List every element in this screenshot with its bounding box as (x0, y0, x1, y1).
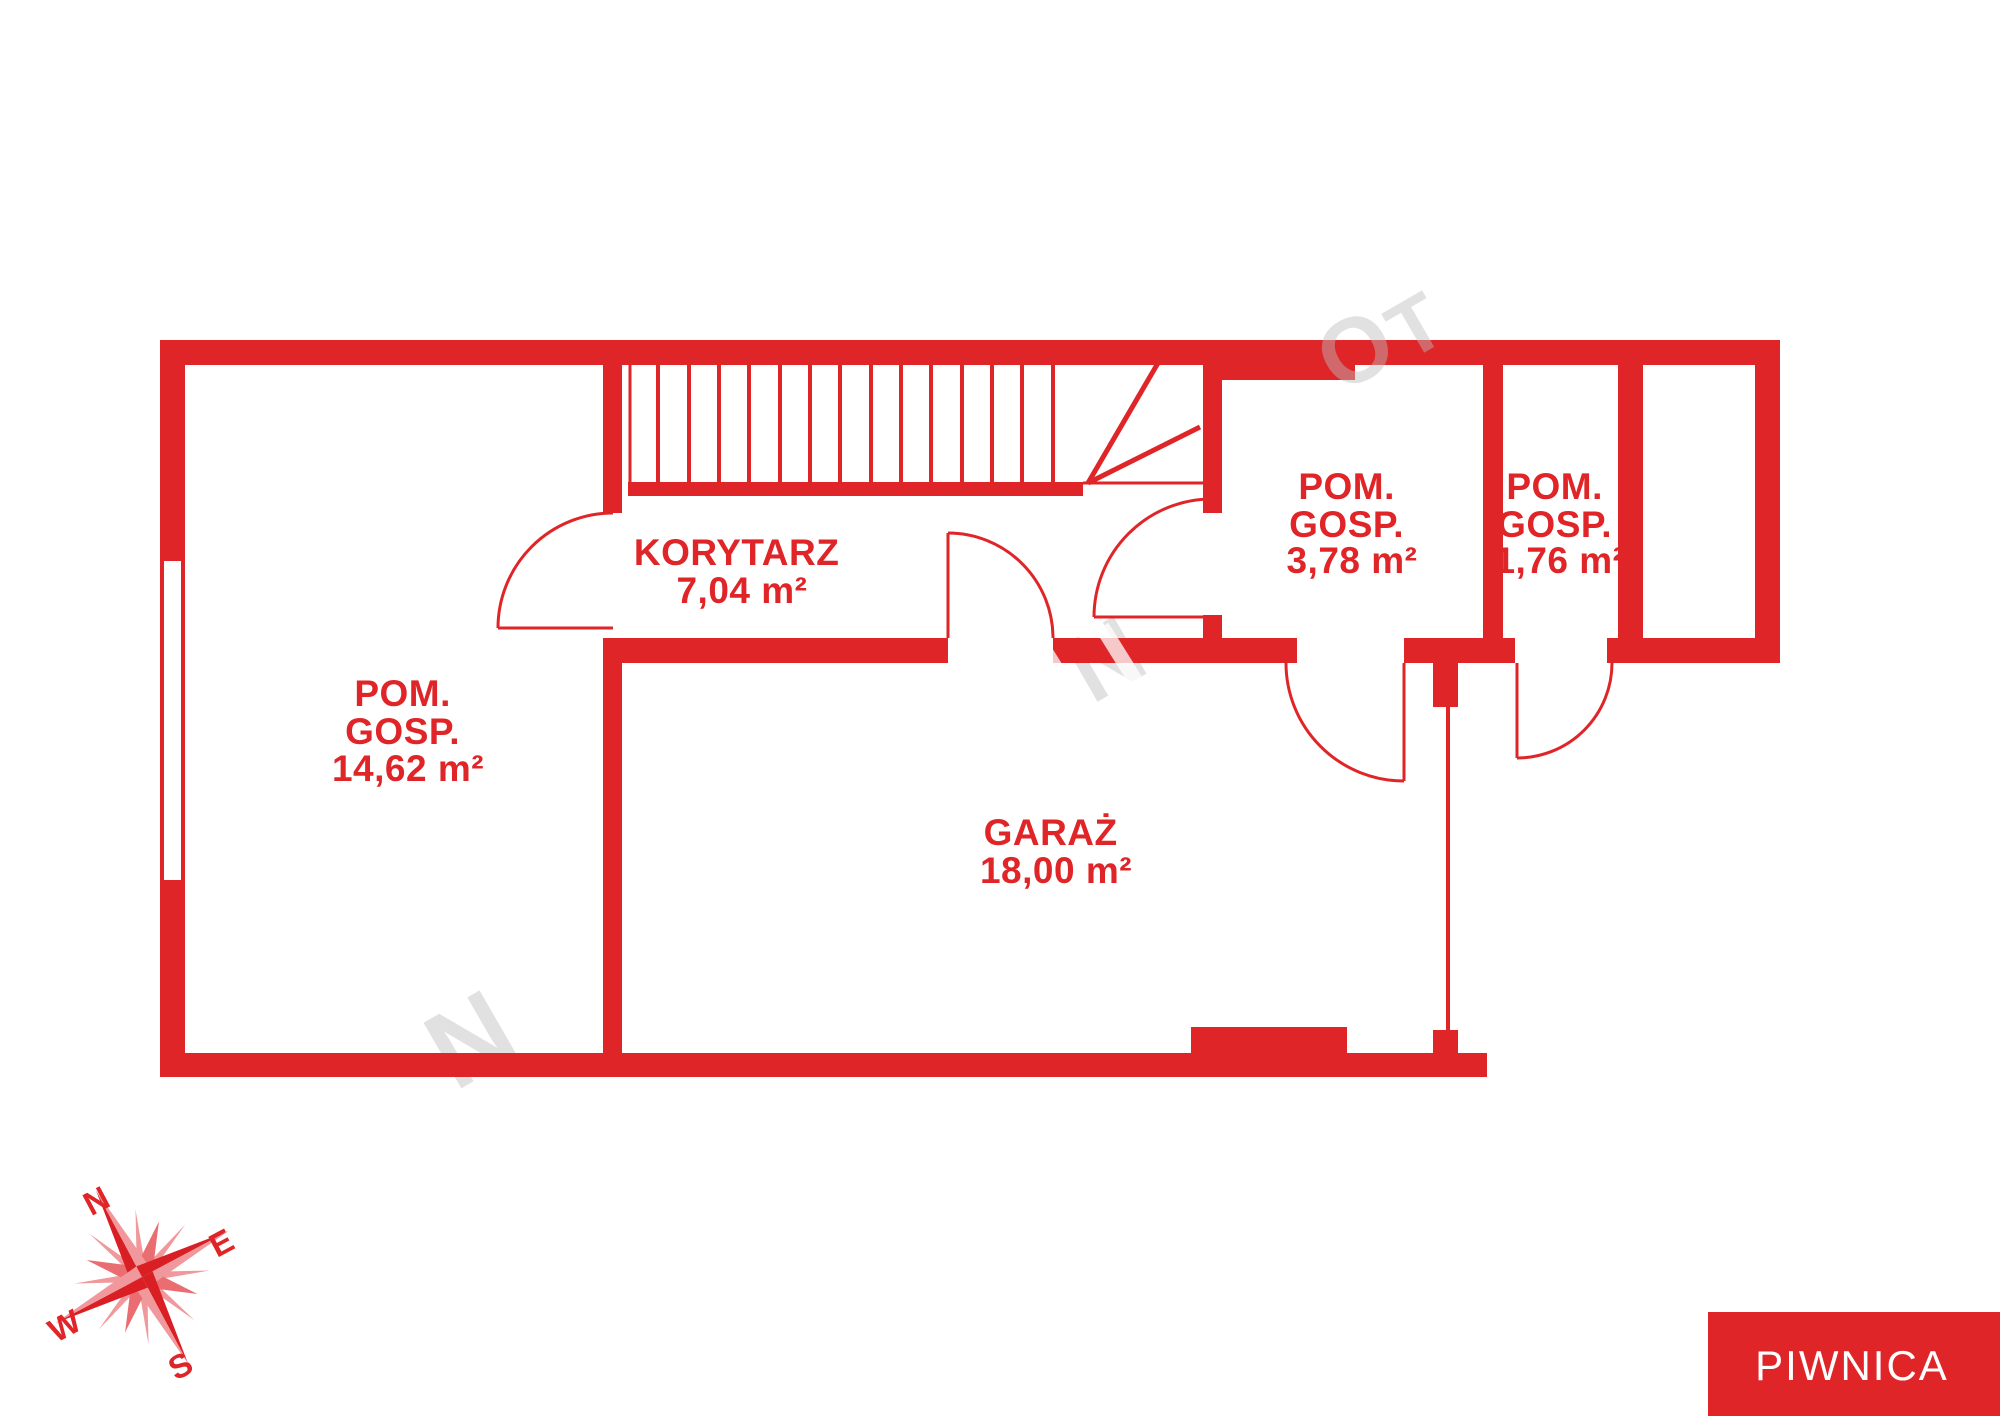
wall-left-lower (160, 883, 185, 1077)
wall-bottom (160, 1053, 1487, 1077)
compass-rose: N E W S (9, 1144, 274, 1409)
compass-star (9, 1144, 274, 1409)
floor-badge: PIWNICA (1708, 1312, 2000, 1416)
label-pom-gosp-large: POM. GOSP. 14,62 m² (332, 673, 484, 789)
watermark-letter: N (406, 967, 536, 1113)
door-swing-arc (948, 533, 1053, 638)
wall-landing-garage (1053, 638, 1297, 663)
window-cap-top (160, 558, 185, 561)
wall-pomgosp3-storeroom (1618, 365, 1643, 638)
wall-top (160, 340, 1780, 365)
label-korytarz: KORYTARZ 7,04 m² (634, 532, 850, 611)
wall-pomgosp1-korytarz (603, 362, 622, 513)
floor-badge-label: PIWNICA (1755, 1342, 1949, 1389)
door-landing-to-pomgosp2 (1094, 499, 1212, 617)
compass-main-points (9, 1144, 274, 1409)
room-labels: POM. GOSP. 14,62 m² KORYTARZ 7,04 m² GAR… (332, 466, 1626, 891)
garage-gate-threshold (1191, 1027, 1347, 1053)
door-swing-arc (1286, 663, 1404, 781)
door-korytarz-to-garage (948, 533, 1053, 638)
stair-landing-bar (628, 482, 1083, 496)
wall-pomgosp1-garage (603, 663, 622, 1053)
wall-right (1755, 340, 1780, 663)
door-korytarz-to-pomgosp1 (498, 513, 613, 628)
compass-east-label: E (203, 1221, 240, 1264)
door-pomgosp3-to-garage-area (1517, 663, 1612, 758)
wall-pomgosp2-pomgosp3 (1483, 365, 1503, 638)
door-swing-arc (1094, 499, 1212, 617)
door-swing-arc (498, 513, 613, 628)
garage-east-stub (1433, 663, 1458, 707)
door-pomgosp2-to-garage-area (1286, 663, 1404, 781)
compass-south-label: S (162, 1344, 199, 1387)
wall-left-upper (160, 340, 185, 558)
staircase (628, 362, 1203, 496)
label-pom-gosp-small: POM. GOSP. 1,76 m² (1494, 466, 1625, 581)
window (160, 558, 185, 883)
basement-floorplan: N N (0, 0, 2000, 1416)
window-cap-bottom (160, 880, 185, 883)
wall-pomgosp3-south (1607, 638, 1780, 663)
wall-landing-pomgosp2-lower (1203, 615, 1222, 663)
wall-landing-pomgosp2-upper (1203, 362, 1222, 513)
garage-east-base-block (1433, 1030, 1458, 1053)
door-swing-arc (1517, 663, 1612, 758)
garage-east-screen-line (1446, 707, 1450, 1030)
label-pom-gosp-medium: POM. GOSP. 3,78 m² (1286, 466, 1417, 581)
wall-korytarz-garage (603, 638, 948, 663)
wall-pomgosp2-south (1404, 638, 1515, 663)
floorplan-page: N N (0, 0, 2000, 1416)
window-outer-line (160, 558, 164, 883)
window-inner-line (181, 558, 185, 883)
label-garaz: GARAŻ 18,00 m² (980, 812, 1132, 891)
